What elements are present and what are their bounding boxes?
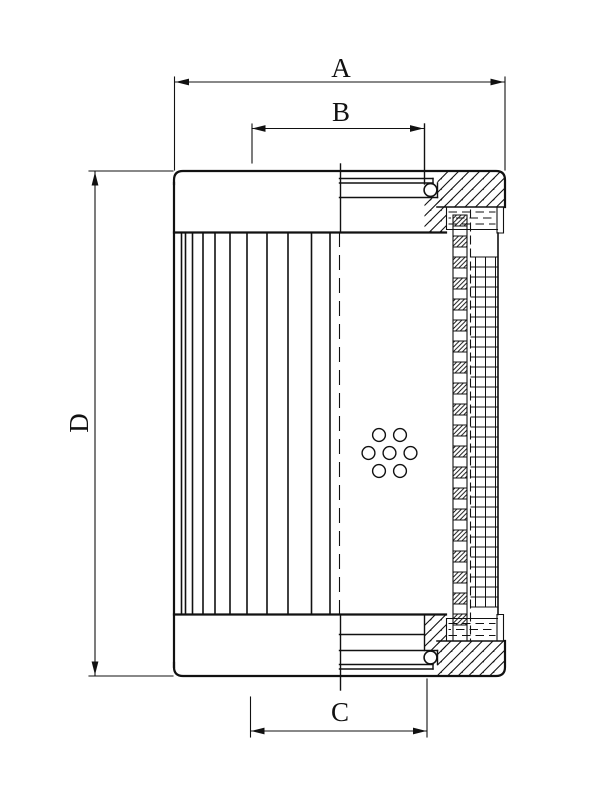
technical-drawing: A B C D <box>0 0 612 792</box>
dim-a-label: A <box>331 53 351 83</box>
dimension-d: D <box>64 171 173 676</box>
dim-a-arrow-left <box>176 79 190 86</box>
pleat-lines <box>182 233 331 615</box>
core-square <box>453 278 467 289</box>
dim-d-arrow-top <box>92 172 99 186</box>
core-square <box>453 257 467 268</box>
dimension-c: C <box>251 679 428 737</box>
core-square <box>453 467 467 478</box>
bottom-cap-section-hatch <box>438 641 505 676</box>
dim-d-arrow-bottom <box>92 662 99 676</box>
core-square <box>453 593 467 604</box>
perforation-hole <box>394 465 407 478</box>
core-square <box>453 446 467 457</box>
core-squares <box>453 215 467 625</box>
dim-b-arrow-left <box>252 125 266 132</box>
bottom-cap-lip-hatch <box>425 615 447 651</box>
core-square <box>453 425 467 436</box>
top-cap-section-hatch <box>438 171 505 207</box>
dim-b-arrow-right <box>410 125 424 132</box>
core-square <box>453 299 467 310</box>
dim-b-label: B <box>332 97 350 127</box>
core-square <box>453 509 467 520</box>
dimension-b: B <box>252 97 424 163</box>
core-square <box>453 488 467 499</box>
core-square <box>453 530 467 541</box>
perforation-hole <box>394 429 407 442</box>
bottom-o-ring <box>424 651 437 664</box>
perforation-hole <box>404 447 417 460</box>
dim-c-arrow-right <box>413 728 427 735</box>
perforation-hole <box>373 465 386 478</box>
dim-d-label: D <box>64 413 94 433</box>
core-square <box>453 236 467 247</box>
top-cap-lip-hatch <box>425 198 447 233</box>
core-square <box>453 614 467 625</box>
core-square <box>453 383 467 394</box>
core-square <box>453 341 467 352</box>
core-square <box>453 572 467 583</box>
perforation-hole <box>383 447 396 460</box>
core-square <box>453 362 467 373</box>
dim-c-arrow-left <box>251 728 265 735</box>
perforation-hole <box>373 429 386 442</box>
wire-mesh <box>471 257 497 607</box>
top-o-ring <box>424 184 437 197</box>
core-tube <box>453 210 471 640</box>
core-square <box>453 404 467 415</box>
top-cap-detail <box>340 124 438 233</box>
bottom-cap-detail <box>340 615 438 691</box>
perforation-holes <box>362 429 417 478</box>
core-square <box>453 320 467 331</box>
drawing-page: A B C D <box>0 0 612 792</box>
core-square <box>453 215 467 226</box>
core-square <box>453 551 467 562</box>
dim-c-label: C <box>331 697 349 727</box>
perforation-hole <box>362 447 375 460</box>
dim-a-arrow-right <box>491 79 505 86</box>
